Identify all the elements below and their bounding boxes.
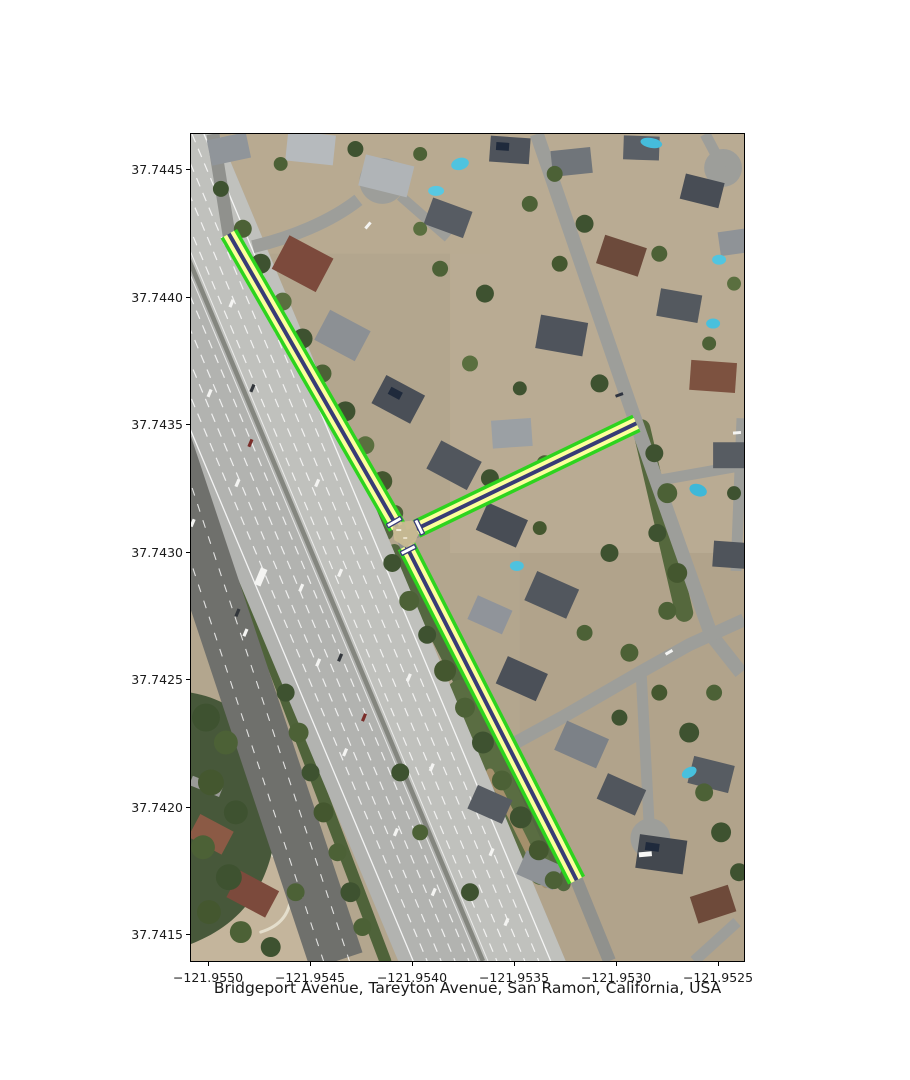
plot-xlabel: Bridgeport Avenue, Tareyton Avenue, San … (190, 979, 745, 997)
y-tick (186, 807, 190, 808)
x-tick (208, 962, 209, 966)
x-tick (310, 962, 311, 966)
y-tick-label: 37.7415 (87, 927, 183, 943)
y-tick-label: 37.7425 (87, 672, 183, 688)
y-tick (186, 169, 190, 170)
x-tick (616, 962, 617, 966)
y-tick-label: 37.7440 (87, 290, 183, 306)
x-tick (412, 962, 413, 966)
y-tick (186, 552, 190, 553)
y-tick-label: 37.7430 (87, 545, 183, 561)
y-tick (186, 679, 190, 680)
y-tick (186, 297, 190, 298)
x-tick (718, 962, 719, 966)
y-tick-label: 37.7445 (87, 162, 183, 178)
x-tick (514, 962, 515, 966)
y-tick (186, 424, 190, 425)
y-tick-label: 37.7420 (87, 800, 183, 816)
y-tick (186, 934, 190, 935)
map-canvas (191, 134, 744, 961)
y-tick-label: 37.7435 (87, 417, 183, 433)
matplotlib-figure: 37.7445 37.7440 37.7435 37.7430 37.7425 … (0, 0, 910, 1080)
map-plot-area (190, 133, 745, 962)
